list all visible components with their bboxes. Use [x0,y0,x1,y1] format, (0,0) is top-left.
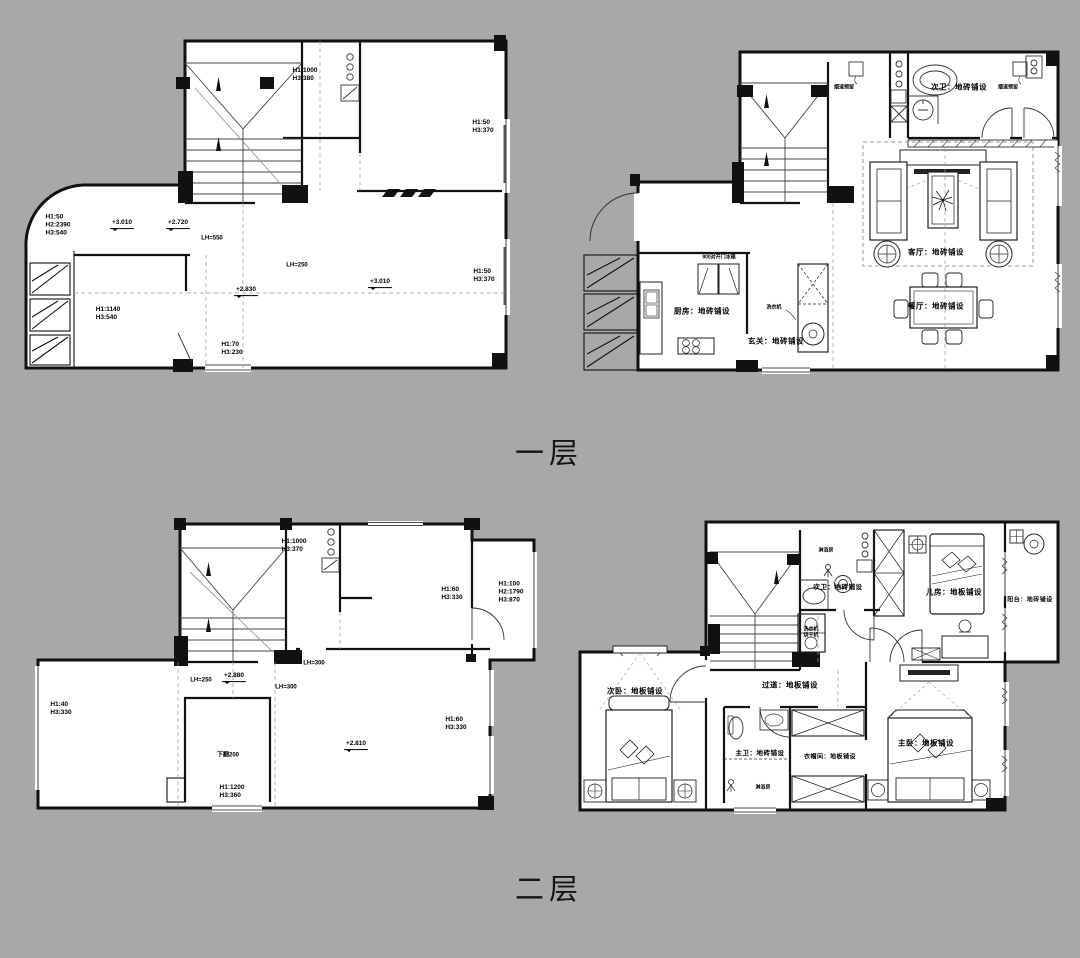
dim-label-win-left: H1:1140 H3:540 [96,306,121,322]
level-label-b: +2.720 [166,219,190,229]
room-label-hall2: 过道：地板铺设 [762,681,818,690]
flue-label-right: 烟道预留 [998,85,1018,91]
room-label-kitchen: 厨房：地砖铺设 [674,307,730,316]
level-label-b: +2.810 [344,740,368,750]
dim-label-win-bottom: H1:70 H3:230 [221,341,242,357]
dim-label-win-top: H1:1000 H3:370 [282,538,307,554]
floor2-dimension-drawing [28,512,548,822]
level-label-d: +3.010 [368,278,392,288]
floor2-dimension-plan: H1:1000 H3:370 H1:60 H3:330 H1:100 H2:17… [28,512,548,822]
level-label-c: +2.830 [234,286,258,296]
dim-label-win-mid: H1:60 H3:330 [441,586,462,602]
railing-hatch [382,189,436,197]
floor1-furniture-plan: 烟道预留 烟道预留 次卫：地砖铺设 客厅：地砖铺设 餐厅：地砖铺设 900对开门… [578,38,1060,378]
dim-label-win-right-bottom: H1:50 H3:370 [473,268,494,284]
washer-label: 洗衣机 [766,305,781,311]
room-label-kids: 儿房：地板铺设 [926,588,982,597]
floor1-dimension-plan: H1:1000 H3:380 H1:50 H3:370 H1:50 H2:239… [20,33,512,378]
floor2-title: 二层 [515,866,583,908]
floor1-dimension-drawing [20,33,512,378]
room-label-master: 主卧：地板铺设 [898,739,954,748]
floor1-furniture-drawing [578,38,1060,378]
left-window-boxes [584,255,638,370]
dim-label-door-left: H1:50 H2:2390 H3:540 [46,213,71,236]
shower-label-top: 淋浴房 [818,548,833,554]
floorplan-sheet: { "page": { "floor1_title": "一层", "floor… [0,0,1080,958]
room-label-bath2f: 次卫：地砖铺设 [931,83,987,92]
dim-label-win-bottom: H1:1200 H3:360 [220,784,245,800]
dim-label-win-right2: H1:60 H3:330 [445,716,466,732]
lh-label-c: LH=300 [275,684,297,691]
room-label-bath2: 次卫：地砖铺设 [814,584,863,592]
level-label-a: +3.010 [110,219,134,229]
lh-label-a: LH=300 [303,660,325,667]
dim-label-win-left: H1:40 H3:330 [50,701,71,717]
lh-label-a: LH=550 [201,235,223,242]
floor1-title: 一层 [515,430,583,472]
bottom-threshold [212,804,262,812]
dim-label-win-right: H1:100 H2:1790 H3:870 [499,580,524,603]
floor2-furniture-drawing [578,512,1062,817]
washer-dryer-label: 洗衣机 烘干机 [803,628,818,639]
room-label-balcony: 阳台：地砖铺设 [1007,597,1053,604]
room-label-hall: 玄关：地砖铺设 [748,337,804,346]
flue-label-left: 烟道预留 [834,85,854,91]
room-label-dining: 餐厅：地砖铺设 [908,302,964,311]
room-label-closet: 衣帽间：地板铺设 [804,754,856,761]
lh-label-b: LH=250 [190,677,212,684]
room-label-living: 客厅：地砖铺设 [908,248,964,257]
shaft-label: 下翻200 [217,752,239,759]
dim-label-win-top: H1:1000 H3:380 [293,67,318,83]
entry-door-gap [634,193,642,241]
floor2-furniture-plan: 淋浴房 次卫：地砖铺设 儿房：地板铺设 阳台：地砖铺设 洗衣机 烘干机 过道：地… [578,512,1062,817]
entry-door-arc [590,193,638,241]
lh-label-b: LH=250 [286,262,308,269]
fridge-label: 900对开门冰箱 [702,255,735,261]
room-label-bedroom2: 次卧：地板铺设 [607,687,663,696]
shower-label-bottom: 淋浴房 [755,785,770,791]
dim-label-win-right-top: H1:50 H3:370 [472,119,493,135]
room-label-masterbath: 主卫：地砖铺设 [736,750,785,758]
level-label-a: +2.880 [222,672,246,682]
entry-threshold [762,366,810,374]
